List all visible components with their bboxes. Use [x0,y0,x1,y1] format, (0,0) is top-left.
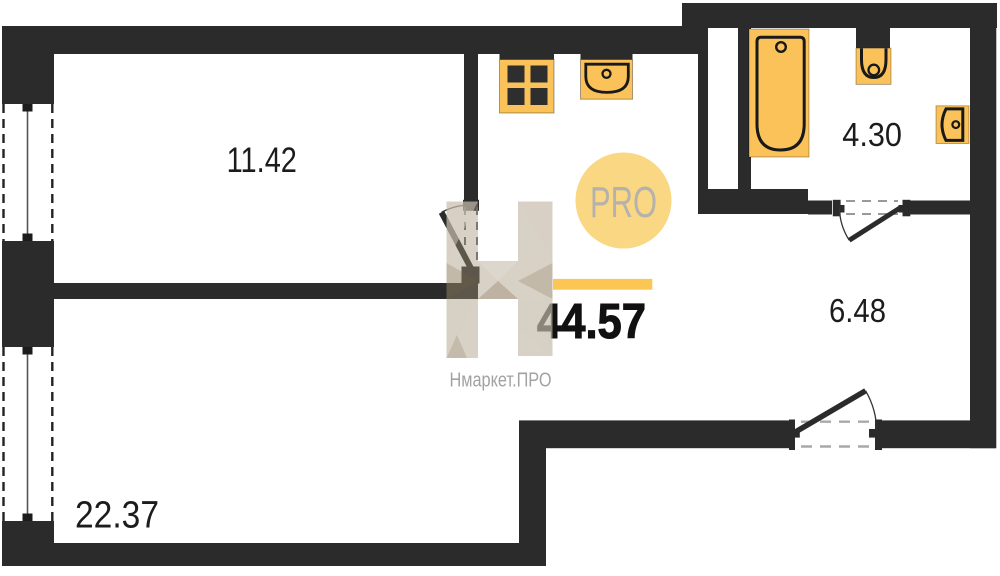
svg-text:22.37: 22.37 [75,494,159,536]
svg-text:PRO: PRO [590,179,657,227]
svg-text:11.42: 11.42 [227,140,297,180]
svg-text:Нмаркет.ПРО: Нмаркет.ПРО [450,368,552,391]
svg-text:6.48: 6.48 [829,293,886,330]
svg-text:4.30: 4.30 [842,117,902,154]
svg-text:44.57: 44.57 [537,294,646,349]
